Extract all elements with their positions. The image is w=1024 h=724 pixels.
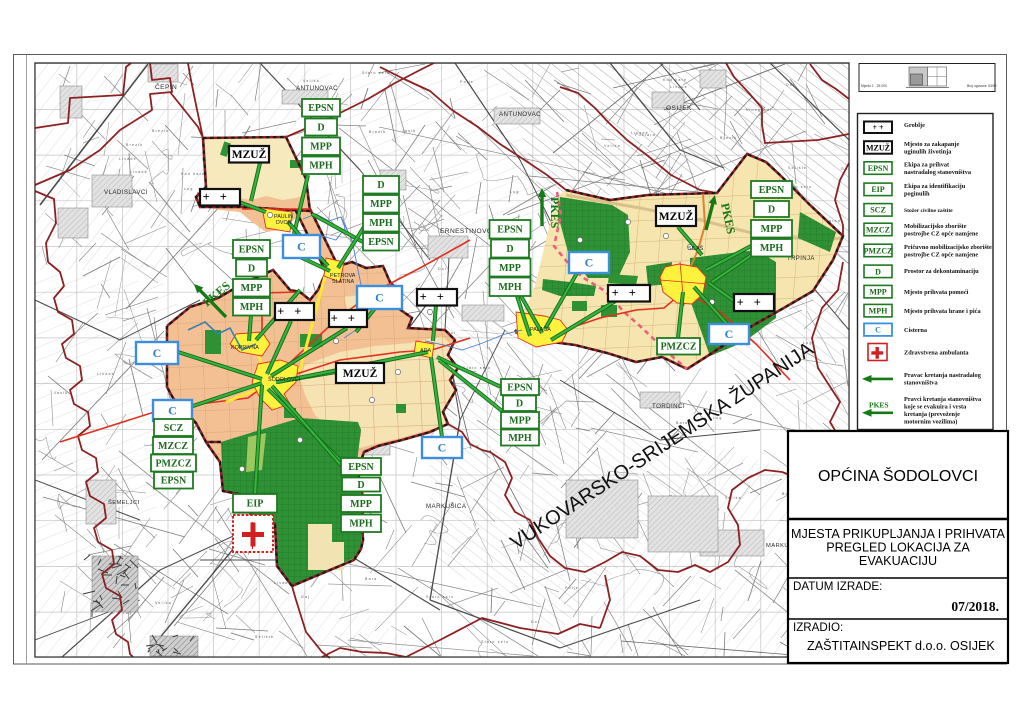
svg-text:EPSN: EPSN: [507, 382, 533, 393]
svg-text:PALAČA: PALAČA: [530, 326, 551, 333]
svg-text:Mjesto prihvata pomoći: Mjesto prihvata pomoći: [904, 289, 969, 296]
svg-text:Brezik: Brezik: [720, 136, 737, 140]
svg-text:MZUŽ: MZUŽ: [343, 366, 378, 380]
svg-text:Velika: Velika: [155, 601, 172, 605]
svg-text:EPSN: EPSN: [348, 462, 374, 473]
svg-text:EPSN: EPSN: [239, 244, 265, 255]
svg-text:MPH: MPH: [369, 218, 393, 229]
svg-text:poginulih: poginulih: [904, 191, 930, 198]
svg-text:Staro selo: Staro selo: [362, 71, 390, 75]
svg-text:ŠEMELJCI: ŠEMELJCI: [108, 499, 140, 506]
svg-text:C: C: [875, 326, 881, 335]
svg-text:Staro selo: Staro selo: [481, 640, 509, 644]
svg-text:Broj ugovora: 53/02: Broj ugovora: 53/02: [967, 84, 997, 88]
svg-text:Pričuvno mobilizacijsko zboriš: Pričuvno mobilizacijsko zborište: [904, 244, 992, 251]
svg-text:MPH: MPH: [498, 282, 522, 293]
svg-text:Pravac kretanja nastradalog: Pravac kretanja nastradalog: [904, 372, 982, 379]
svg-text:MPP: MPP: [370, 199, 392, 210]
svg-text:SCZ: SCZ: [164, 423, 184, 434]
svg-text:MZCZ: MZCZ: [866, 225, 890, 234]
svg-text:Staro selo: Staro selo: [426, 595, 454, 599]
svg-text:Polje: Polje: [565, 586, 579, 590]
svg-text:Ekipa za prihvat: Ekipa za prihvat: [904, 162, 950, 169]
svg-text:OSIJEK: OSIJEK: [666, 105, 692, 112]
svg-text:MPH: MPH: [508, 433, 532, 444]
svg-text:Cisterna: Cisterna: [904, 327, 928, 334]
svg-text:Velika: Velika: [303, 79, 320, 83]
svg-text:uginulih životinja: uginulih životinja: [904, 149, 952, 156]
svg-text:+ +: + +: [277, 304, 305, 318]
svg-text:D: D: [875, 267, 881, 276]
svg-text:+ +: + +: [203, 190, 231, 204]
svg-text:Lug: Lug: [184, 187, 194, 191]
svg-text:MPH: MPH: [349, 519, 373, 530]
svg-text:Velika: Velika: [604, 144, 621, 148]
svg-text:Zdravstvena ambulanta: Zdravstvena ambulanta: [904, 349, 969, 356]
svg-text:MJESTA PRIKUPLJANJA I PRIHVATA: MJESTA PRIKUPLJANJA I PRIHVATA: [791, 527, 1006, 541]
svg-text:VLADISLAVCI: VLADISLAVCI: [104, 189, 148, 196]
svg-text:Selište: Selište: [255, 635, 274, 639]
svg-text:D: D: [248, 263, 255, 274]
svg-text:MPH: MPH: [240, 302, 264, 313]
svg-text:EPSN: EPSN: [497, 225, 523, 236]
svg-text:MPP: MPP: [869, 288, 886, 297]
svg-text:ŠODOLOVCI: ŠODOLOVCI: [268, 376, 300, 383]
svg-text:EPSN: EPSN: [308, 103, 334, 114]
svg-text:ANTUNOVAC: ANTUNOVAC: [296, 85, 338, 92]
svg-text:MPP: MPP: [499, 263, 521, 274]
svg-text:PKES: PKES: [869, 401, 889, 410]
svg-text:EPSN: EPSN: [368, 237, 394, 248]
svg-text:Mjerilo 1 : 25 000: Mjerilo 1 : 25 000: [861, 84, 887, 88]
svg-text:Stožer civilne zaštite: Stožer civilne zaštite: [904, 208, 953, 214]
svg-text:C: C: [168, 404, 177, 418]
svg-text:ADA: ADA: [420, 348, 431, 354]
svg-text:OPĆINA ŠODOLOVCI: OPĆINA ŠODOLOVCI: [818, 466, 978, 485]
svg-text:EPSN: EPSN: [161, 476, 187, 487]
svg-text:C: C: [297, 240, 306, 254]
svg-text:+ +: + +: [872, 123, 884, 132]
svg-text:Mjesto prihvata hrane i pića: Mjesto prihvata hrane i pića: [904, 308, 981, 315]
svg-text:C: C: [585, 256, 594, 270]
svg-text:ERNESTINOVO: ERNESTINOVO: [440, 228, 492, 235]
svg-text:Livade: Livade: [97, 372, 115, 376]
svg-text:MPH: MPH: [309, 161, 333, 172]
svg-text:Dol: Dol: [786, 83, 795, 87]
svg-text:PMZCZ: PMZCZ: [660, 342, 696, 353]
svg-text:EIP: EIP: [247, 499, 264, 510]
svg-text:Brezik: Brezik: [152, 129, 169, 133]
svg-text:Bara: Bara: [365, 577, 377, 581]
svg-text:MPP: MPP: [241, 283, 263, 294]
svg-text:EIP: EIP: [871, 185, 884, 194]
svg-text:ČEPIN: ČEPIN: [155, 82, 177, 91]
svg-text:koje se evakuira i vrsta: koje se evakuira i vrsta: [904, 404, 967, 411]
svg-text:+ +: + +: [737, 295, 765, 309]
svg-text:Gaj: Gaj: [301, 595, 310, 599]
svg-text:SILAŠ: SILAŠ: [688, 245, 704, 252]
svg-text:Livade: Livade: [130, 170, 148, 174]
svg-text:Brezik: Brezik: [369, 130, 386, 134]
svg-text:Kod bare: Kod bare: [181, 172, 205, 176]
svg-text:PKES: PKES: [548, 197, 562, 229]
svg-text:MZCZ: MZCZ: [158, 441, 188, 452]
svg-text:DVOR: DVOR: [276, 220, 292, 226]
svg-text:PMZCZ: PMZCZ: [155, 458, 191, 469]
svg-text:Selište: Selište: [788, 166, 807, 170]
svg-text:stanovništva: stanovništva: [904, 380, 938, 387]
svg-text:Dol: Dol: [531, 620, 540, 624]
svg-text:Kod bare: Kod bare: [663, 78, 687, 82]
svg-text:+ +: + +: [420, 290, 448, 304]
svg-text:Dol: Dol: [438, 267, 447, 271]
svg-text:MZUŽ: MZUŽ: [866, 142, 890, 152]
svg-text:Mobilizacijsko zborište: Mobilizacijsko zborište: [904, 223, 967, 230]
svg-text:D: D: [317, 122, 324, 133]
svg-text:Jasik: Jasik: [54, 391, 68, 395]
svg-text:MPH: MPH: [869, 307, 888, 316]
svg-text:EPSN: EPSN: [868, 164, 889, 173]
svg-text:C: C: [438, 441, 447, 455]
svg-text:Jasik: Jasik: [402, 129, 416, 133]
svg-text:Mjesto za zakapanje: Mjesto za zakapanje: [904, 141, 959, 148]
svg-text:D: D: [506, 244, 513, 255]
svg-text:EVAKUACIJU: EVAKUACIJU: [859, 554, 937, 568]
svg-text:TORDINCI: TORDINCI: [652, 403, 685, 410]
svg-text:MPH: MPH: [760, 243, 784, 254]
svg-text:Prostor za dekontaminaciju: Prostor za dekontaminaciju: [904, 268, 979, 275]
svg-text:+ +: + +: [331, 311, 359, 325]
svg-text:Ekipa za identifikaciju: Ekipa za identifikaciju: [904, 183, 966, 190]
svg-text:PMZCZ: PMZCZ: [864, 246, 893, 255]
svg-text:D: D: [768, 204, 775, 215]
svg-text:SCZ: SCZ: [870, 206, 886, 215]
svg-text:kretanja (prevoženje: kretanja (prevoženje: [904, 411, 960, 418]
svg-text:nastradalog stanovništva: nastradalog stanovništva: [904, 169, 972, 176]
svg-text:IZRADIO:: IZRADIO:: [793, 621, 843, 634]
svg-text:Polje: Polje: [460, 80, 474, 84]
svg-text:C: C: [375, 291, 384, 305]
svg-text:D: D: [377, 180, 384, 191]
svg-text:KOPRIVNA: KOPRIVNA: [231, 345, 259, 351]
svg-text:MZUŽ: MZUŽ: [232, 147, 267, 161]
svg-text:07/2018.: 07/2018.: [951, 599, 999, 614]
svg-text:DATUM IZRADE:: DATUM IZRADE:: [793, 580, 882, 593]
svg-text:ANTUNOVAC: ANTUNOVAC: [499, 111, 541, 118]
svg-text:EPSN: EPSN: [759, 185, 785, 196]
svg-text:Livade: Livade: [119, 157, 137, 161]
svg-text:MPP: MPP: [350, 499, 372, 510]
svg-text:Livade: Livade: [631, 131, 649, 135]
svg-text:Livade: Livade: [670, 85, 688, 89]
svg-text:postrojbe CZ opće namjene: postrojbe CZ opće namjene: [904, 252, 978, 259]
svg-text:Vinogradi: Vinogradi: [746, 108, 772, 112]
svg-text:C: C: [153, 346, 162, 360]
svg-text:Lug: Lug: [510, 190, 520, 194]
svg-text:+ +: + +: [612, 286, 640, 300]
svg-text:MPP: MPP: [310, 142, 332, 153]
svg-text:Pravci kretanja stanovništva: Pravci kretanja stanovništva: [904, 396, 982, 403]
svg-text:PREGLED LOKACIJA ZA: PREGLED LOKACIJA ZA: [826, 541, 970, 555]
svg-text:ZAŠTITAINSPEKT d.o.o. OSIJEK: ZAŠTITAINSPEKT d.o.o. OSIJEK: [807, 638, 995, 653]
svg-text:D: D: [357, 480, 364, 491]
svg-text:C: C: [725, 327, 734, 341]
svg-text:Groblje: Groblje: [904, 122, 925, 129]
svg-text:motornim vozilima): motornim vozilima): [904, 419, 957, 426]
svg-text:MPP: MPP: [509, 416, 531, 427]
svg-text:SLATINA: SLATINA: [332, 279, 354, 285]
svg-text:Velika: Velika: [725, 496, 742, 500]
svg-text:Brezik: Brezik: [126, 143, 143, 147]
svg-text:D: D: [516, 399, 523, 410]
svg-text:MARKUŠICA: MARKUŠICA: [426, 503, 467, 510]
svg-text:MPP: MPP: [761, 224, 783, 235]
svg-text:postrojbe CZ opće namjene: postrojbe CZ opće namjene: [904, 231, 978, 238]
svg-text:MZUŽ: MZUŽ: [659, 209, 694, 223]
